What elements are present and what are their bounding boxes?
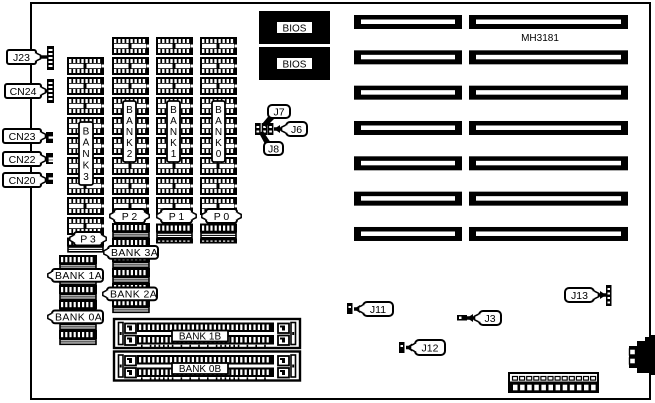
svg-text:N: N (215, 127, 222, 138)
svg-text:N: N (170, 127, 177, 138)
svg-text:BIOS: BIOS (283, 60, 307, 71)
svg-text:K: K (126, 138, 133, 149)
svg-text:0: 0 (216, 149, 222, 160)
svg-text:K: K (215, 138, 222, 149)
svg-text:BANK 3A: BANK 3A (111, 247, 158, 259)
svg-text:A: A (215, 116, 222, 127)
svg-text:K: K (170, 138, 177, 149)
svg-text:2: 2 (127, 149, 133, 160)
svg-text:B: B (126, 105, 133, 116)
svg-text:A: A (126, 116, 133, 127)
svg-text:J13: J13 (571, 290, 588, 302)
svg-text:BANK 1B: BANK 1B (179, 332, 222, 343)
svg-text:BANK 2A: BANK 2A (110, 289, 157, 301)
svg-text:B: B (83, 126, 90, 137)
svg-text:J23: J23 (13, 52, 30, 64)
svg-text:CN23: CN23 (9, 131, 36, 143)
svg-text:K: K (83, 161, 90, 172)
svg-text:B: B (170, 105, 177, 116)
svg-text:B: B (215, 105, 222, 116)
svg-text:BANK 1A: BANK 1A (55, 270, 102, 282)
svg-text:J7: J7 (273, 106, 284, 118)
svg-text:P 0: P 0 (214, 211, 230, 223)
svg-text:P 3: P 3 (80, 234, 96, 246)
svg-text:BANK 0B: BANK 0B (179, 364, 222, 375)
svg-text:A: A (170, 116, 177, 127)
svg-text:MH3181: MH3181 (521, 33, 559, 44)
svg-text:A: A (83, 138, 90, 149)
svg-text:BANK 0A: BANK 0A (55, 312, 102, 324)
svg-text:J12: J12 (422, 342, 439, 354)
svg-text:CN20: CN20 (9, 175, 36, 187)
svg-text:BIOS: BIOS (283, 24, 307, 35)
svg-text:N: N (82, 149, 89, 160)
svg-text:N: N (126, 127, 133, 138)
svg-text:3: 3 (83, 172, 89, 183)
svg-text:J6: J6 (291, 124, 302, 136)
svg-text:J3: J3 (484, 313, 495, 325)
svg-text:CN22: CN22 (9, 154, 36, 166)
svg-text:J11: J11 (370, 304, 386, 316)
svg-text:1: 1 (171, 149, 177, 160)
svg-text:J8: J8 (268, 143, 279, 155)
svg-text:P 1: P 1 (169, 211, 185, 223)
svg-text:P 2: P 2 (122, 211, 138, 223)
svg-text:CN24: CN24 (10, 86, 37, 98)
